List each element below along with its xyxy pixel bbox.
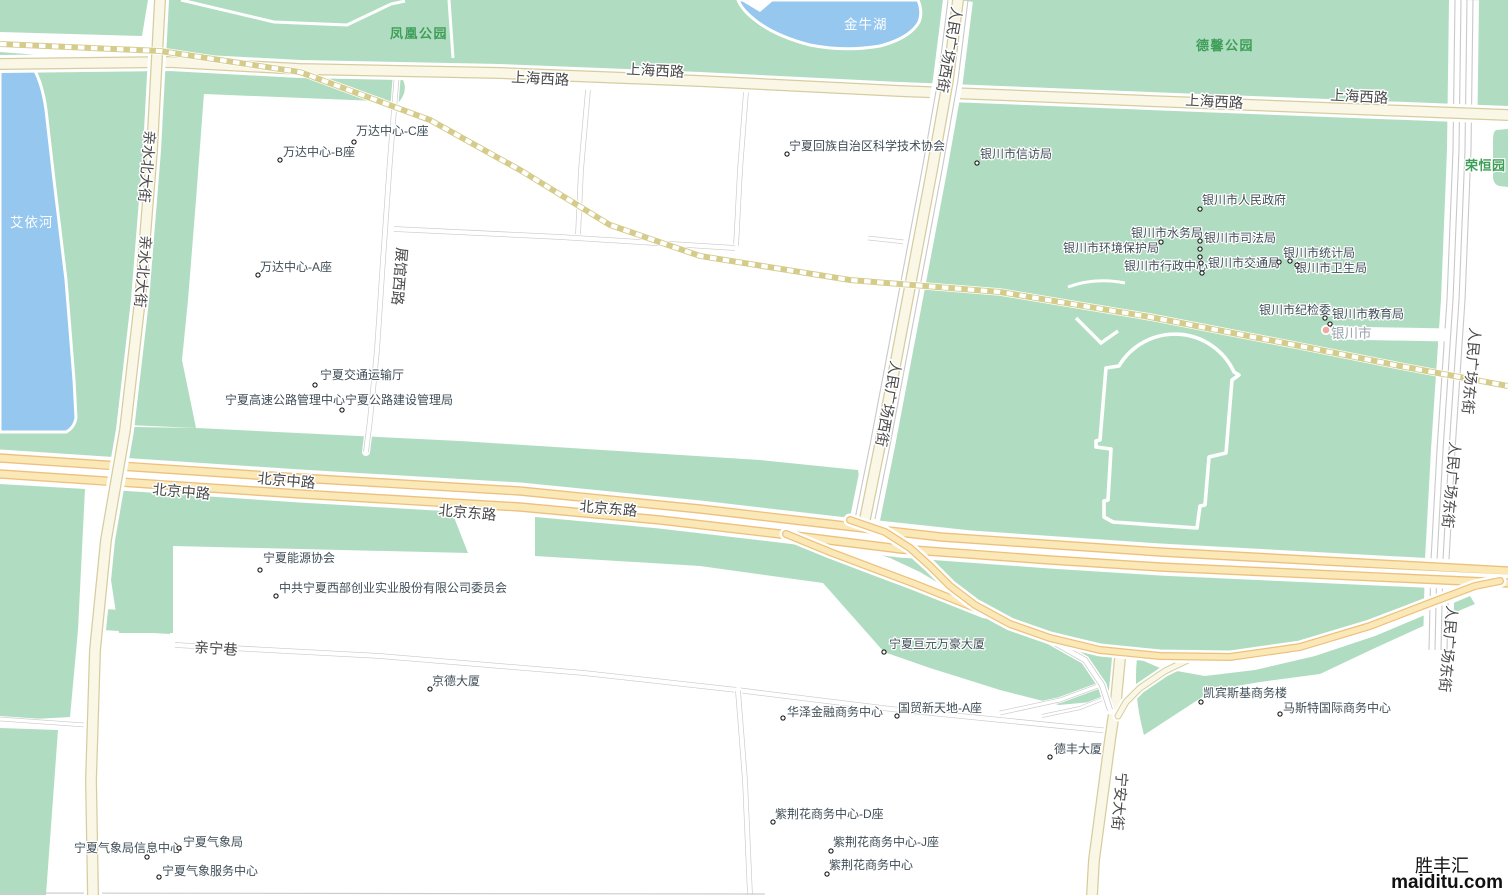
- svg-text:万达中心-A座: 万达中心-A座: [260, 259, 332, 274]
- svg-text:京德大厦: 京德大厦: [432, 673, 480, 688]
- svg-text:银川市信访局: 银川市信访局: [980, 146, 1052, 161]
- svg-text:银川市行政中心: 银川市行政中心: [1124, 258, 1208, 273]
- svg-text:上海西路: 上海西路: [626, 61, 685, 81]
- svg-text:艾依河: 艾依河: [10, 215, 54, 230]
- svg-text:上海西路: 上海西路: [1185, 92, 1244, 112]
- svg-text:凯宾斯基商务楼: 凯宾斯基商务楼: [1203, 685, 1287, 700]
- svg-text:宁夏气象服务中心: 宁夏气象服务中心: [162, 863, 258, 878]
- svg-text:银川市卫生局: 银川市卫生局: [1295, 260, 1367, 275]
- svg-text:紫荆花商务中心-J座: 紫荆花商务中心-J座: [833, 834, 939, 849]
- svg-text:maiditu.com: maiditu.com: [1391, 872, 1503, 893]
- svg-text:万达中心-B座: 万达中心-B座: [283, 144, 355, 159]
- svg-text:银川市统计局: 银川市统计局: [1283, 245, 1355, 260]
- svg-text:华泽金融商务中心: 华泽金融商务中心: [787, 704, 883, 719]
- svg-text:上海西路: 上海西路: [1330, 87, 1389, 107]
- svg-text:紫荆花商务中心-D座: 紫荆花商务中心-D座: [775, 806, 884, 821]
- svg-text:马斯特国际商务中心: 马斯特国际商务中心: [1283, 700, 1391, 715]
- svg-text:银川市环境保护局: 银川市环境保护局: [1063, 240, 1159, 255]
- svg-text:银川市交通局: 银川市交通局: [1208, 255, 1280, 270]
- svg-text:凤凰公园: 凤凰公园: [390, 26, 448, 41]
- svg-text:宁夏高速公路管理中心宁夏公路建设管理局: 宁夏高速公路管理中心宁夏公路建设管理局: [225, 392, 453, 407]
- svg-text:宁夏回族自治区科学技术协会: 宁夏回族自治区科学技术协会: [789, 138, 945, 153]
- svg-text:银川市纪检委: 银川市纪检委: [1259, 302, 1331, 317]
- svg-text:银川市教育局: 银川市教育局: [1332, 306, 1404, 321]
- svg-text:银川市: 银川市: [1331, 325, 1372, 341]
- svg-text:荣恒园: 荣恒园: [1464, 158, 1506, 173]
- svg-text:金牛湖: 金牛湖: [844, 17, 888, 32]
- svg-text:中共宁夏西部创业实业股份有限公司委员会: 中共宁夏西部创业实业股份有限公司委员会: [279, 580, 507, 595]
- svg-text:银川市人民政府: 银川市人民政府: [1202, 192, 1286, 207]
- svg-text:上海西路: 上海西路: [511, 69, 570, 89]
- svg-text:德丰大厦: 德丰大厦: [1054, 741, 1102, 756]
- svg-text:宁夏亘元万豪大厦: 宁夏亘元万豪大厦: [889, 636, 985, 651]
- svg-text:紫荆花商务中心: 紫荆花商务中心: [829, 857, 913, 872]
- svg-text:德馨公园: 德馨公园: [1196, 38, 1254, 53]
- svg-text:亲宁巷: 亲宁巷: [194, 639, 239, 659]
- svg-text:银川市司法局: 银川市司法局: [1204, 230, 1276, 245]
- svg-text:国贸新天地-A座: 国贸新天地-A座: [898, 700, 982, 715]
- svg-text:银川市水务局: 银川市水务局: [1131, 225, 1203, 240]
- svg-text:宁夏交通运输厅: 宁夏交通运输厅: [320, 367, 404, 382]
- svg-text:宁夏气象局信息中心: 宁夏气象局信息中心: [74, 840, 182, 855]
- svg-text:宁夏能源协会: 宁夏能源协会: [263, 550, 335, 565]
- svg-text:宁夏气象局: 宁夏气象局: [183, 834, 243, 849]
- svg-text:万达中心-C座: 万达中心-C座: [356, 123, 429, 138]
